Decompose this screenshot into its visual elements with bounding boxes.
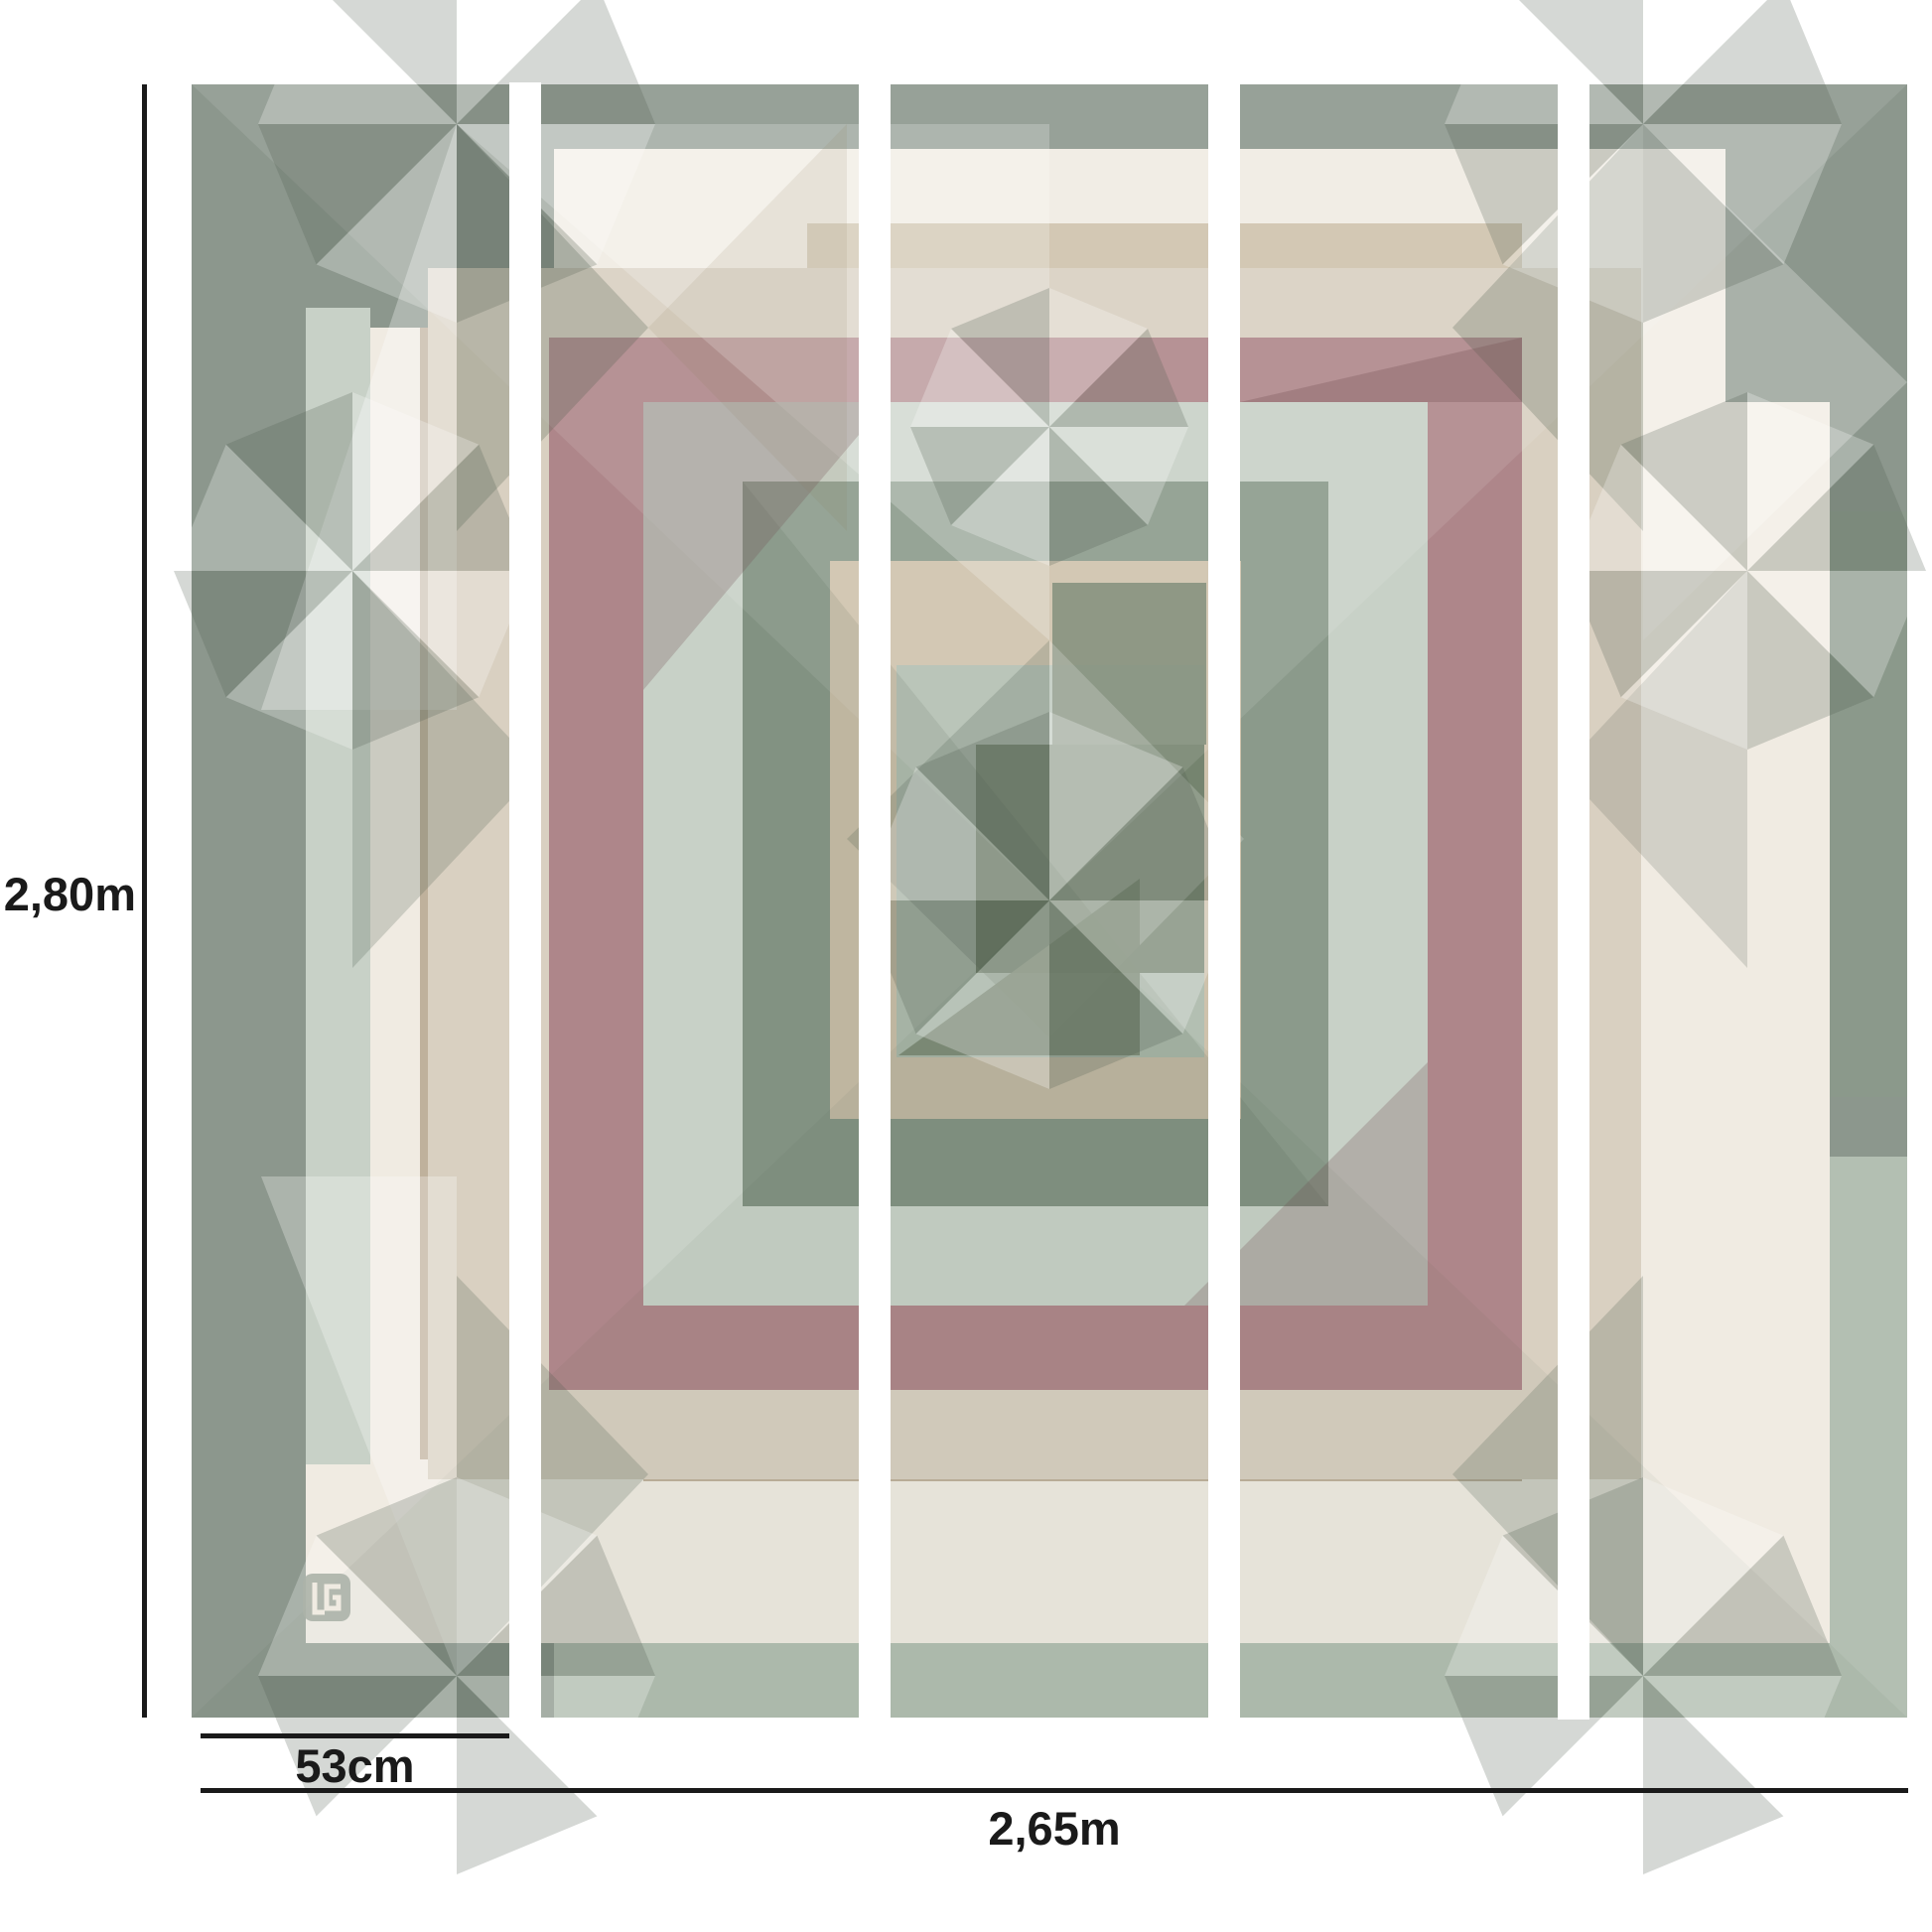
panel-gap bbox=[859, 82, 891, 1720]
total-width-dimension-label: 2,65m bbox=[201, 1801, 1908, 1857]
wallpaper-panels-svg bbox=[0, 0, 1932, 1932]
panel-width-dimension-label: 53cm bbox=[201, 1738, 509, 1794]
panel-gap bbox=[509, 82, 541, 1720]
wallpaper-dimension-diagram: 2,80m 53cm 2,65m bbox=[0, 0, 1932, 1932]
panel-gap bbox=[1558, 82, 1589, 1720]
brand-logo-icon bbox=[303, 1574, 350, 1621]
panel-gap bbox=[1208, 82, 1240, 1720]
mural-pattern bbox=[174, 0, 1926, 1874]
height-dimension-line bbox=[142, 84, 147, 1718]
height-dimension-label: 2,80m bbox=[0, 867, 136, 922]
